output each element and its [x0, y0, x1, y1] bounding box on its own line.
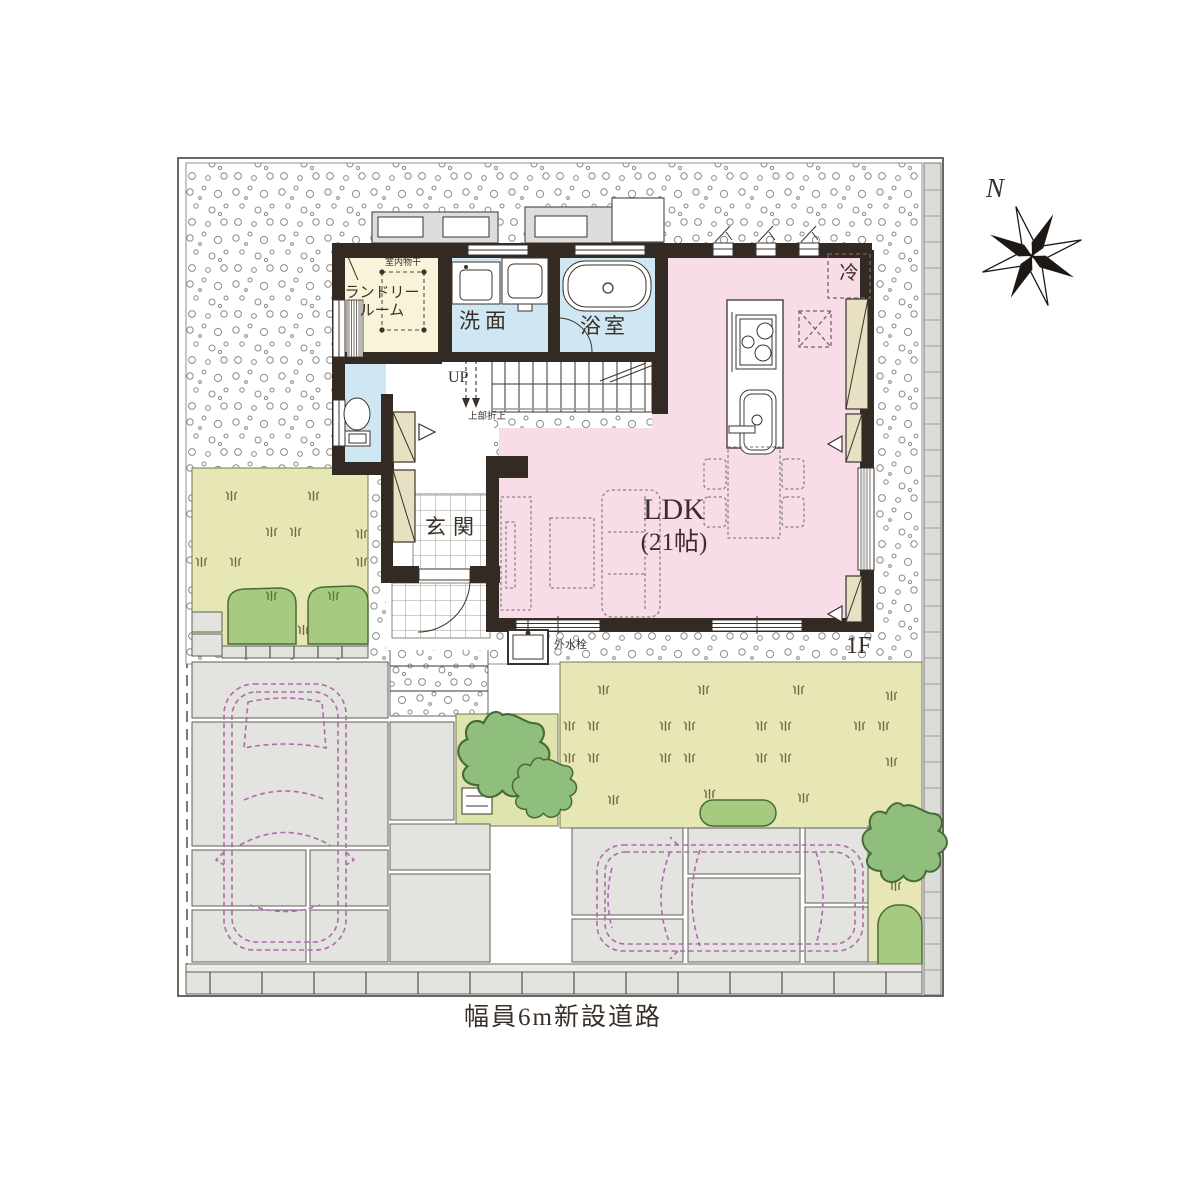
- fridge-label: 冷: [828, 264, 870, 284]
- kitchen-island: [727, 300, 783, 454]
- bush-icon: [700, 800, 776, 826]
- bathtub-icon: [563, 261, 651, 311]
- tree-icon: [863, 803, 947, 882]
- toilet-icon: [344, 398, 370, 446]
- indoor-drying-label: 室内物干: [375, 258, 431, 267]
- floor-label: 1F: [846, 634, 871, 659]
- sidewalk: [186, 964, 922, 994]
- bush-icon: [308, 586, 368, 644]
- ceiling-note-label: 上部折上: [468, 413, 506, 423]
- side-garden: [192, 468, 368, 658]
- laundry-room-label-2: ルーム: [349, 304, 415, 320]
- stairs-up-label: UP: [448, 370, 468, 387]
- bush-icon: [228, 588, 296, 644]
- entrance-label: 玄関: [418, 516, 488, 538]
- porch-tile: [392, 583, 490, 638]
- compass-rose-icon: [966, 190, 1097, 321]
- garden-step: [192, 612, 222, 632]
- compass-north-label: N: [986, 174, 1004, 202]
- floor-plan-page: ランドリー ルーム 室内物干 洗面 浴室 UP 上部折上 玄関 LDK (21帖…: [0, 0, 1200, 1200]
- tree-icon: [512, 758, 576, 818]
- garden-step: [192, 634, 222, 656]
- garden-curb: [222, 646, 368, 658]
- east-window: [858, 468, 874, 570]
- water-tap-label: 外水栓: [554, 640, 587, 652]
- laundry-room-label: ランドリー: [343, 286, 421, 302]
- vanity-sink-icon: [452, 262, 500, 304]
- stove-icon: [732, 312, 776, 372]
- washroom-label: 洗面: [452, 310, 518, 332]
- ldk-size-label: (21帖): [608, 530, 740, 556]
- bathroom-label: 浴室: [570, 315, 638, 337]
- road-label: 幅員6m新設道路: [398, 1005, 728, 1031]
- washing-machine-icon: [502, 258, 548, 311]
- ldk-label: LDK: [612, 494, 736, 526]
